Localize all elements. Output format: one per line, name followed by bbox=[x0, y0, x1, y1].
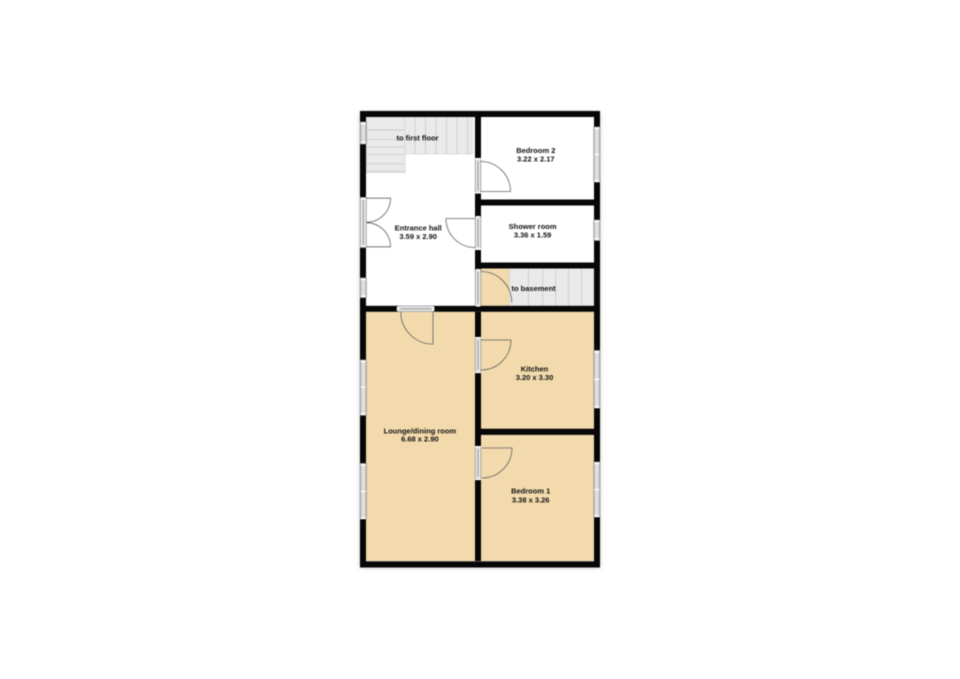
svg-text:3.20 x 3.30: 3.20 x 3.30 bbox=[516, 373, 554, 382]
svg-text:3.59 x 2.90: 3.59 x 2.90 bbox=[399, 232, 437, 241]
svg-text:to basement: to basement bbox=[512, 284, 557, 293]
svg-text:3.22 x 2.17: 3.22 x 2.17 bbox=[517, 155, 555, 164]
svg-text:Bedroom 1: Bedroom 1 bbox=[511, 487, 550, 496]
svg-text:to first floor: to first floor bbox=[396, 133, 438, 142]
svg-text:3.36 x 1.59: 3.36 x 1.59 bbox=[514, 231, 552, 240]
svg-text:6.68 x 2.90: 6.68 x 2.90 bbox=[401, 435, 439, 444]
svg-text:3.38 x 3.26: 3.38 x 3.26 bbox=[512, 495, 550, 504]
